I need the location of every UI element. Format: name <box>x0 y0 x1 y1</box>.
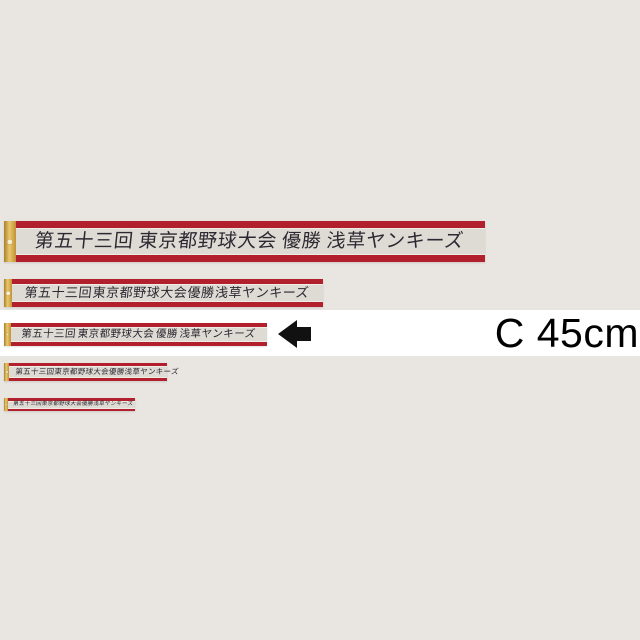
ribbon-center-field: 第五十三回 東京都野球大会 優勝 浅草ヤンキーズ <box>11 327 267 342</box>
ribbon-text: 第五十三回 東京都野球大会 優勝 浅草ヤンキーズ <box>8 402 139 408</box>
ribbon-body: 第五十三回 東京都野球大会 優勝 浅草ヤンキーズ <box>9 363 167 381</box>
ribbon-text: 第五十三回 東京都野球大会 優勝 浅草ヤンキーズ <box>10 329 267 340</box>
ribbon-body: 第五十三回 東京都野球大会 優勝 浅草ヤンキーズ <box>11 323 267 346</box>
ribbon-gold-edge <box>4 221 16 262</box>
ribbon-gold-edge <box>4 279 12 307</box>
ribbon-red-border-bottom <box>11 342 267 346</box>
eyelet-icon <box>5 404 7 406</box>
ribbon-text-segment: 東京都野球大会 <box>77 329 155 340</box>
ribbon-red-border-bottom <box>8 409 135 412</box>
ribbon-center-field: 第五十三回 東京都野球大会 優勝 浅草ヤンキーズ <box>8 401 135 409</box>
ribbon-text-segment: 浅草ヤンキーズ <box>214 287 309 300</box>
ribbon-red-border-top <box>16 221 485 228</box>
ribbon-text-segment: 優勝 <box>109 368 125 376</box>
ribbon-text: 第五十三回 東京都野球大会 優勝 浅草ヤンキーズ <box>9 368 187 376</box>
eyelet-icon <box>5 371 7 373</box>
size-label: C 45cm <box>495 311 639 355</box>
ribbon-text-segment: 第五十三回 <box>34 232 135 251</box>
ribbon-smallest: 第五十三回 東京都野球大会 優勝 浅草ヤンキーズ <box>4 398 135 411</box>
ribbon-text-segment: 浅草ヤンキーズ <box>124 368 179 376</box>
ribbon-text-segment: 第五十三回 <box>15 368 55 376</box>
ribbon-text-segment: 第五十三回 <box>21 329 77 340</box>
ribbon-body: 第五十三回 東京都野球大会 優勝 浅草ヤンキーズ <box>12 279 323 307</box>
ribbon-text-segment: 東京都野球大会 <box>41 402 82 408</box>
eyelet-icon <box>7 239 12 244</box>
ribbon-text-segment: 東京都野球大会 <box>138 232 278 251</box>
ribbon-largest: 第五十三回 東京都野球大会 優勝 浅草ヤンキーズ <box>4 221 485 262</box>
ribbon-text-segment: 優勝 <box>81 402 93 408</box>
ribbon-text-segment: 優勝 <box>281 232 323 251</box>
ribbon-text-segment: 第五十三回 <box>13 402 42 408</box>
ribbon-text-segment: 浅草ヤンキーズ <box>179 329 256 340</box>
ribbon-text-segment: 東京都野球大会 <box>54 368 109 376</box>
ribbon-text-segment: 第五十三回 <box>24 287 93 300</box>
eyelet-icon <box>6 333 9 336</box>
ribbon-small: 第五十三回 東京都野球大会 優勝 浅草ヤンキーズ <box>4 363 167 381</box>
arrow-left-icon <box>278 320 311 348</box>
ribbon-body: 第五十三回 東京都野球大会 優勝 浅草ヤンキーズ <box>16 221 485 262</box>
ribbon-text-segment: 優勝 <box>187 287 215 300</box>
product-image: 第五十三回 東京都野球大会 優勝 浅草ヤンキーズ 第五十三回 東京都野球大会 優… <box>0 0 640 640</box>
ribbon-center-field: 第五十三回 東京都野球大会 優勝 浅草ヤンキーズ <box>16 228 485 255</box>
ribbon-large: 第五十三回 東京都野球大会 優勝 浅草ヤンキーズ <box>4 279 323 307</box>
ribbon-text-segment: 優勝 <box>155 329 178 340</box>
ribbon-center-field: 第五十三回 東京都野球大会 優勝 浅草ヤンキーズ <box>9 366 167 378</box>
ribbon-45cm-indicated: 第五十三回 東京都野球大会 優勝 浅草ヤンキーズ <box>4 323 267 346</box>
eyelet-icon <box>6 291 10 295</box>
ribbon-red-border-bottom <box>9 378 167 381</box>
ribbon-text-segment: 浅草ヤンキーズ <box>93 402 133 408</box>
ribbon-text: 第五十三回 東京都野球大会 優勝 浅草ヤンキーズ <box>15 232 486 251</box>
ribbon-red-border-bottom <box>16 255 485 262</box>
ribbon-text-segment: 浅草ヤンキーズ <box>326 232 465 251</box>
ribbon-text: 第五十三回 東京都野球大会 優勝 浅草ヤンキーズ <box>11 287 323 300</box>
ribbon-body: 第五十三回 東京都野球大会 優勝 浅草ヤンキーズ <box>8 398 135 411</box>
ribbon-red-border-bottom <box>12 302 323 307</box>
ribbon-text-segment: 東京都野球大会 <box>92 287 188 300</box>
ribbon-center-field: 第五十三回 東京都野球大会 優勝 浅草ヤンキーズ <box>12 284 323 302</box>
